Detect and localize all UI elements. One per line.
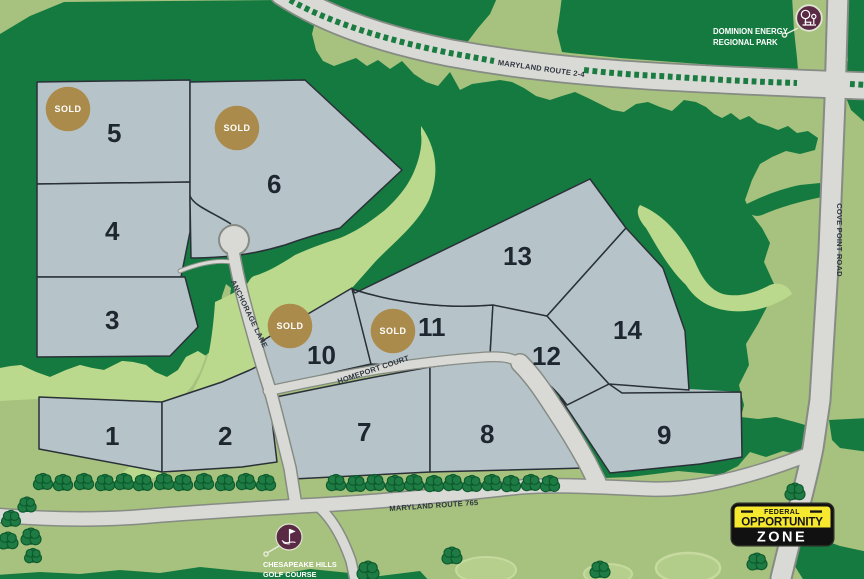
svg-text:5: 5 [107,118,121,148]
svg-text:7: 7 [357,417,371,447]
svg-text:REGIONAL PARK: REGIONAL PARK [713,38,778,47]
svg-text:11: 11 [418,312,446,342]
svg-text:SOLD: SOLD [276,321,303,331]
svg-text:SOLD: SOLD [54,104,81,114]
svg-text:GOLF COURSE: GOLF COURSE [263,570,317,579]
svg-text:10: 10 [307,340,336,370]
svg-text:14: 14 [613,315,642,345]
svg-text:DOMINION ENERGY: DOMINION ENERGY [713,27,789,36]
svg-text:13: 13 [503,241,532,271]
svg-text:3: 3 [105,305,119,335]
svg-text:1: 1 [105,421,119,451]
svg-text:OPPORTUNITY: OPPORTUNITY [741,516,823,529]
svg-text:ZONE: ZONE [757,530,807,546]
svg-text:12: 12 [532,341,561,371]
svg-text:COVE POINT ROAD: COVE POINT ROAD [835,203,844,277]
svg-text:9: 9 [657,420,671,450]
svg-text:4: 4 [105,216,120,246]
svg-text:SOLD: SOLD [379,326,406,336]
svg-text:CHESAPEAKE HILLS: CHESAPEAKE HILLS [263,560,337,569]
svg-text:8: 8 [480,419,494,449]
svg-text:6: 6 [267,169,281,199]
svg-text:SOLD: SOLD [223,123,250,133]
svg-text:2: 2 [218,421,232,451]
